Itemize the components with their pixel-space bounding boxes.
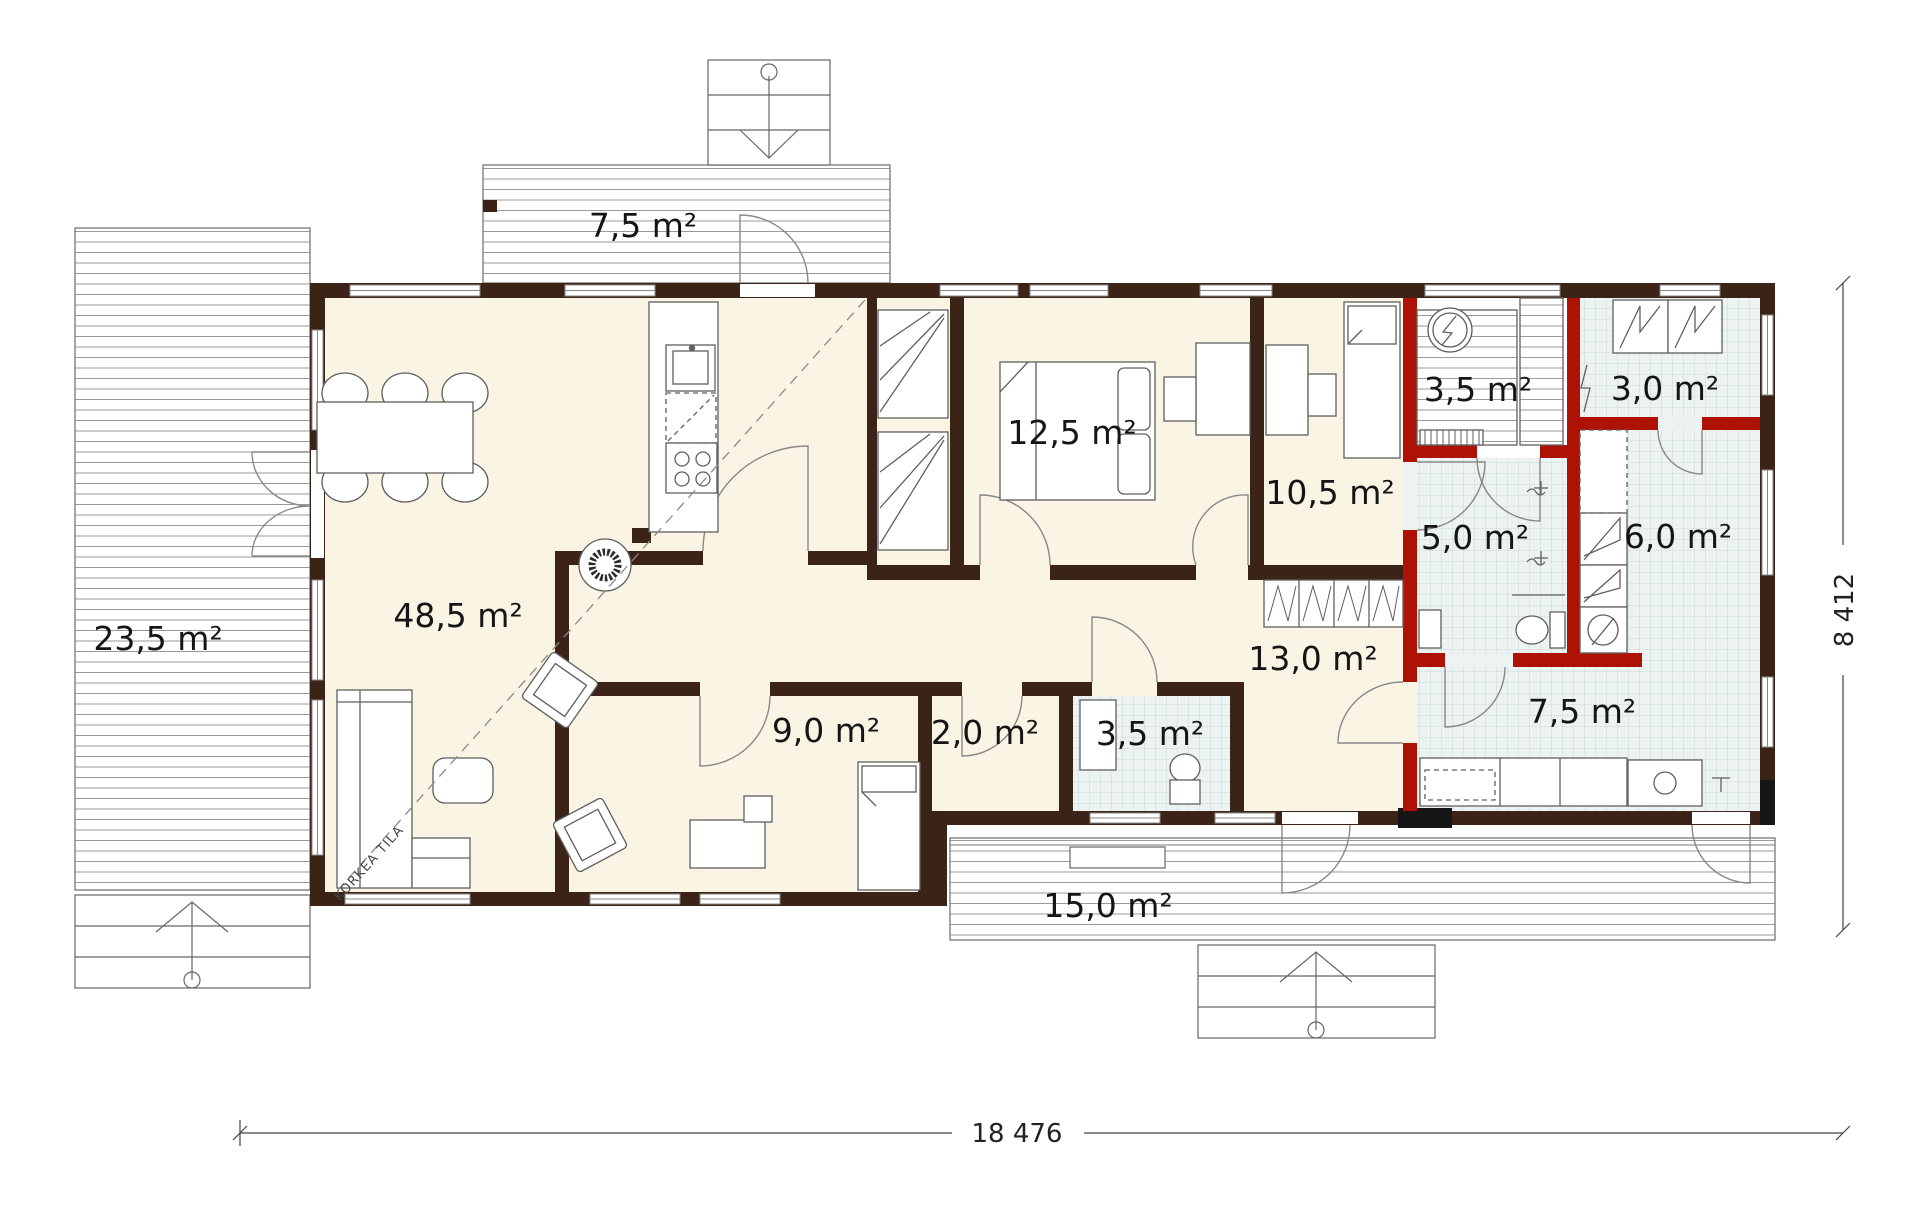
bottom-left-stairs bbox=[75, 895, 310, 988]
left-deck bbox=[75, 228, 310, 890]
room-label-bedroom-3: 9,0 m² bbox=[772, 711, 880, 750]
black-wall-corner bbox=[1760, 780, 1775, 825]
overall-height-dimension-group: 8 412 bbox=[1825, 545, 1860, 675]
fireplace-flue bbox=[579, 539, 631, 591]
room-label-bathroom: 5,0 m² bbox=[1421, 518, 1529, 557]
kitchen-island bbox=[649, 302, 718, 532]
terrace-bench bbox=[1070, 847, 1165, 868]
room-label-bedroom-master: 12,5 m² bbox=[1007, 413, 1136, 452]
room-label-utility: 6,0 m² bbox=[1624, 517, 1732, 556]
bed-3 bbox=[858, 762, 920, 890]
corner-sink bbox=[1419, 610, 1441, 648]
utility-cabinets bbox=[1580, 430, 1627, 653]
top-stairs bbox=[708, 60, 830, 165]
bottom-stairs bbox=[1198, 945, 1435, 1038]
window-right-wall bbox=[1762, 315, 1773, 747]
floor-plan-page: 48,5 m² 7,5 m² 23,5 m² 12,5 m² 10,5 m² 3… bbox=[0, 0, 1920, 1207]
laundry-sink bbox=[1628, 760, 1702, 806]
room-label-bottom-terrace: 15,0 m² bbox=[1043, 886, 1172, 925]
coffee-table bbox=[433, 758, 493, 803]
dining-set bbox=[317, 373, 488, 502]
room-label-hallway: 13,0 m² bbox=[1248, 639, 1377, 678]
overall-height-dimension: 8 412 bbox=[1830, 573, 1860, 647]
room-label-top-terrace: 7,5 m² bbox=[589, 206, 697, 245]
hall-closets bbox=[1264, 580, 1403, 627]
toilet bbox=[1516, 616, 1548, 644]
room-label-laundry: 7,5 m² bbox=[1528, 692, 1636, 731]
room-label-wc: 3,5 m² bbox=[1096, 714, 1204, 753]
room-label-living: 48,5 m² bbox=[393, 596, 522, 635]
room-label-technical: 3,0 m² bbox=[1611, 369, 1719, 408]
bed-2 bbox=[1344, 302, 1400, 458]
floor-plan-drawing: 48,5 m² 7,5 m² 23,5 m² 12,5 m² 10,5 m² 3… bbox=[0, 0, 1920, 1207]
room-label-bedroom-2: 10,5 m² bbox=[1265, 473, 1394, 512]
overall-width-dimension: 18 476 bbox=[972, 1119, 1063, 1149]
room-label-left-deck: 23,5 m² bbox=[93, 619, 222, 658]
room-label-closet: 2,0 m² bbox=[931, 713, 1039, 752]
room-label-sauna: 3,5 m² bbox=[1424, 370, 1532, 409]
laundry-counter bbox=[1420, 758, 1730, 806]
sauna-heater bbox=[1428, 308, 1472, 352]
